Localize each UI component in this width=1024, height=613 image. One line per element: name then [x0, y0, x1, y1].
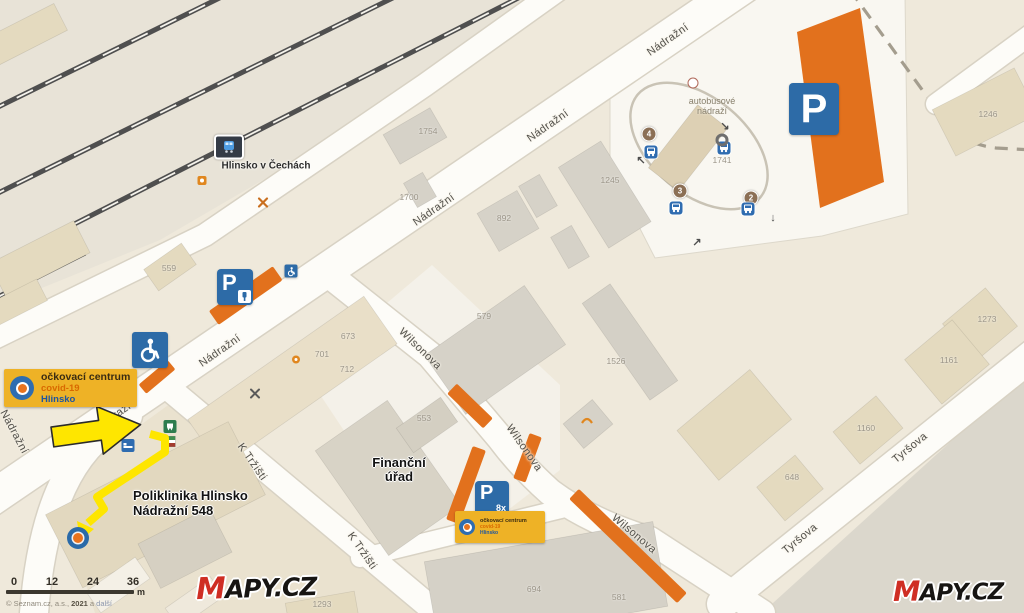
building-number: 1160	[857, 423, 875, 433]
building-number: 1526	[607, 356, 626, 366]
roundabout-icon	[716, 134, 729, 147]
wheelchair-glyph	[137, 337, 163, 363]
workshop-poi-icon[interactable]	[249, 387, 262, 405]
accessible-parking-icon-small[interactable]	[285, 265, 298, 278]
building-number: 1246	[979, 109, 998, 119]
building-number: 553	[417, 413, 431, 423]
scale-ticks: 0122436	[6, 576, 156, 588]
street-label: Wilsonova	[503, 422, 544, 473]
vaccination-center-mini-label: očkovací centrum covid-19 Hlinsko	[455, 511, 545, 543]
train-station-icon[interactable]	[214, 135, 244, 160]
mapy-cz-logo[interactable]: MAPY.CZ	[893, 573, 1004, 608]
accessible-parking-icon[interactable]	[132, 332, 168, 368]
building-number: 1754	[419, 126, 438, 136]
financni-urad-label: Finanční úřad	[372, 456, 425, 484]
direction-arrow-icon: ↘	[720, 120, 729, 133]
poi-icon[interactable]	[197, 173, 208, 191]
lodging-poi-icon[interactable]	[122, 439, 135, 457]
street-label: Nádražní	[645, 21, 691, 58]
street-label: Nádražní	[525, 107, 571, 144]
bus-loop-poi-icon[interactable]	[688, 78, 699, 89]
bus-stop-icon[interactable]	[645, 146, 658, 159]
bus-platform-badge[interactable]: 3	[673, 184, 688, 199]
parking-letter: P	[480, 482, 493, 505]
vaccination-line1: očkovací centrum	[41, 372, 130, 383]
scale-bar: 0122436 m	[6, 576, 156, 588]
street-label: Tyršova	[890, 430, 930, 465]
street-label: Nádražní	[197, 332, 243, 369]
parking-letter: P	[222, 270, 237, 296]
building-number: 1700	[400, 192, 419, 202]
vaccination-center-label: očkovací centrum covid-19 Hlinsko	[4, 369, 137, 407]
parking-sign-large[interactable]: P	[789, 83, 839, 135]
scale-tick: 24	[87, 576, 99, 588]
train-glyph	[221, 141, 237, 154]
bus-stop-icon[interactable]	[670, 202, 683, 215]
building-number: 648	[785, 472, 799, 482]
bus-station-label: autobusové nádraží	[689, 96, 736, 116]
scale-bar-line	[6, 590, 134, 594]
shelter-poi-icon[interactable]	[580, 412, 594, 430]
street-label: Wilsonova	[396, 326, 443, 372]
station-label: Hlinsko v Čechách	[222, 161, 311, 172]
attribution-link[interactable]: další	[96, 599, 112, 608]
parking-8x-sign[interactable]: P 8x	[475, 481, 509, 515]
restaurant-poi-icon[interactable]	[291, 352, 302, 370]
parking-meter-icon	[238, 290, 251, 303]
scale-unit: m	[137, 587, 145, 597]
building-number: 581	[612, 592, 626, 602]
vaccination-logo-icon	[459, 519, 475, 535]
building-number: 1741	[713, 155, 732, 165]
building-number: 579	[477, 311, 491, 321]
scale-tick: 0	[11, 576, 17, 588]
building-number: 673	[341, 331, 355, 341]
tools-poi-icon[interactable]	[257, 196, 270, 214]
direction-arrow-icon: ↓	[770, 212, 776, 224]
parking-letter: P	[801, 87, 828, 132]
building-number: 1245	[601, 175, 620, 185]
mapy-cz-logo[interactable]: MAPY.CZ	[195, 568, 317, 607]
direction-arrow-icon: ↗	[692, 236, 701, 249]
map-attribution: © Seznam.cz, a.s., 2021 a další	[6, 599, 112, 608]
street-label: Nádražní	[0, 408, 31, 456]
building-number: 1161	[940, 355, 958, 365]
bus-stop-icon[interactable]	[742, 203, 755, 216]
bus-platform-badge[interactable]: 4	[642, 127, 657, 142]
street-label: K Tržišti	[345, 530, 379, 572]
building-number: 892	[497, 213, 511, 223]
street-label: Tyršova	[780, 521, 820, 556]
pharmacy-flag-icon[interactable]	[165, 434, 176, 452]
building-number: 694	[527, 584, 541, 594]
street-label: Wilsonova	[609, 512, 658, 556]
parking-meter-sign[interactable]: P	[217, 269, 253, 305]
building-number: 701	[315, 349, 329, 359]
street-label: K Tržišti	[235, 441, 269, 483]
vaccination-line2: covid-19	[41, 383, 130, 394]
building-number: 712	[340, 364, 354, 374]
scale-tick: 12	[46, 576, 58, 588]
vaccination-logo-icon	[10, 376, 34, 400]
poliklinika-label: Poliklinika Hlinsko Nádražní 548	[133, 489, 248, 518]
wheelchair-glyph	[286, 266, 296, 276]
building-number: 559	[162, 263, 176, 273]
vaccination-line3: Hlinsko	[41, 394, 130, 405]
map-canvas[interactable]: NádražníNádražníNádražníNádražníNádražní…	[0, 0, 1024, 613]
building-number: 1273	[978, 314, 997, 324]
